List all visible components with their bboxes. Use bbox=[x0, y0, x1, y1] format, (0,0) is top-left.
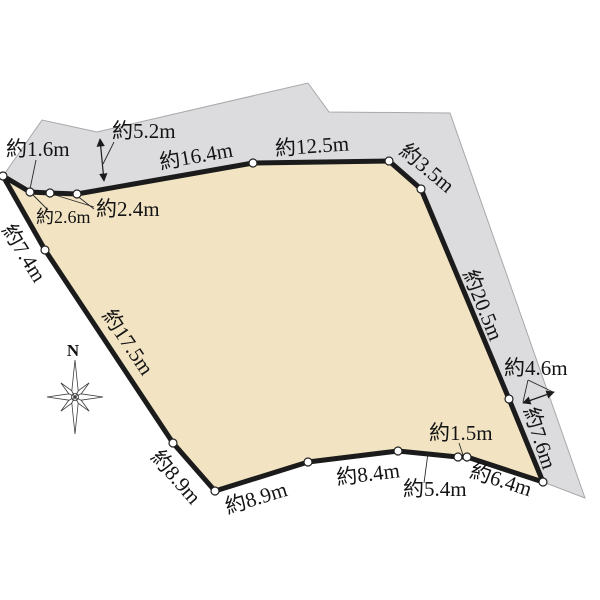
measurement-label-4-6: 約4.6m bbox=[504, 356, 568, 380]
measurement-label-2-6: 約2.6m bbox=[36, 207, 91, 227]
boundary-vertex-dot bbox=[26, 188, 34, 196]
measurement-label-5-2: 約5.2m bbox=[112, 119, 176, 143]
boundary-vertex-dot bbox=[394, 447, 402, 455]
boundary-vertex-dot bbox=[249, 159, 257, 167]
compass-north-label: N bbox=[67, 341, 80, 360]
measurement-label-2-4: 約2.4m bbox=[96, 197, 160, 221]
boundary-vertex-dot bbox=[169, 439, 177, 447]
boundary-vertex-dot bbox=[41, 246, 49, 254]
boundary-vertex-dot bbox=[73, 190, 81, 198]
boundary-vertex-dot bbox=[211, 487, 219, 495]
boundary-vertex-dot bbox=[539, 478, 547, 486]
measurement-label-1-5: 約1.5m bbox=[429, 421, 493, 445]
boundary-vertex-dot bbox=[505, 395, 513, 403]
boundary-vertex-dot bbox=[46, 189, 54, 197]
boundary-vertex-dot bbox=[304, 458, 312, 466]
boundary-vertex-dot bbox=[385, 157, 393, 165]
boundary-vertex-dot bbox=[0, 172, 7, 180]
measurement-label-5-4: 約5.4m bbox=[403, 477, 467, 501]
measurement-label-1-6: 約1.6m bbox=[6, 137, 70, 161]
boundary-vertex-dot bbox=[417, 185, 425, 193]
land-diagram-svg: 約1.6m 約5.2m 約2.4m 約2.6m 約4.6m 約1.5m 約5.4… bbox=[0, 0, 600, 600]
boundary-vertex-dot bbox=[463, 453, 471, 461]
boundary-vertex-dot bbox=[454, 453, 462, 461]
land-plot-diagram: 約1.6m 約5.2m 約2.4m 約2.6m 約4.6m 約1.5m 約5.4… bbox=[0, 0, 600, 600]
